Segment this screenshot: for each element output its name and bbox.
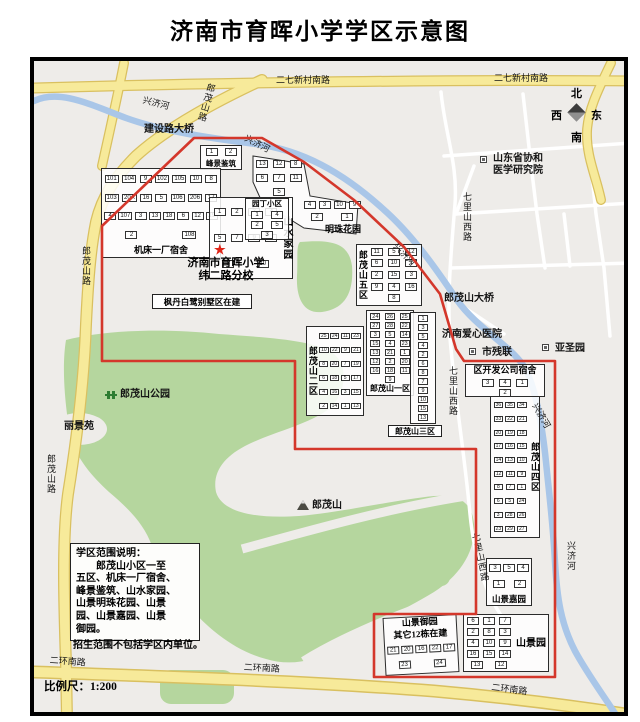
map-label: 医学研究院 — [493, 166, 543, 176]
building-box: 12 — [273, 160, 285, 168]
building-box: 5 — [214, 234, 226, 242]
building-box: 10 — [517, 457, 527, 463]
building-box: 3 — [489, 564, 501, 572]
building-box: 7 — [506, 484, 515, 490]
note-line: 五区、机床一厂宿舍、 — [76, 573, 194, 586]
building-group: 115126101215394168 — [367, 245, 421, 305]
building-box: 2 — [225, 148, 237, 156]
building-box: 13 — [351, 403, 361, 409]
building-box: 5 — [271, 221, 283, 229]
building-box: 6 — [371, 259, 383, 267]
building-box: 28 — [505, 512, 515, 518]
building-box: 13 — [505, 457, 515, 463]
building-box: 5 — [155, 194, 167, 202]
building-box: 1 — [214, 208, 226, 216]
building-box: 22 — [505, 416, 515, 422]
district-label: 明珠花园 — [323, 224, 363, 236]
map-label: 七里山西路 — [448, 366, 457, 416]
school-name: 济南市育晖小学 — [156, 257, 296, 270]
building-box: 5 — [385, 331, 395, 338]
school-star-icon: ★ — [214, 243, 226, 256]
building-box: 25 — [319, 333, 329, 339]
building-box: 16 — [370, 367, 380, 374]
building-box: 10 — [483, 639, 495, 647]
green-patch — [384, 560, 450, 586]
page-title: 济南市育晖小学学区示意图 — [0, 12, 640, 46]
building-box: 33 — [494, 416, 504, 422]
district-label: 山景园 — [514, 637, 548, 650]
building-box: 18 — [385, 367, 395, 374]
building-box: 2 — [251, 221, 263, 229]
building-box: 1 — [493, 580, 505, 588]
building-box: 8 — [388, 294, 400, 302]
district-wuqu: 郎茂山五区115126101215394168 — [356, 244, 422, 306]
building-box: 103 — [105, 194, 119, 202]
building-box: 6 — [256, 174, 268, 182]
building-box: 7 — [273, 174, 285, 182]
building-box: 20A — [122, 194, 137, 202]
building-box: 21 — [385, 349, 395, 356]
building-box: 16 — [467, 650, 479, 658]
building-box: 11 — [290, 174, 302, 182]
note-line: 郎茂山小区一至 — [76, 561, 194, 574]
district-label: 区开发公司宿舍 — [466, 365, 544, 377]
poi-icon — [469, 348, 476, 355]
building-box: 20 — [330, 361, 340, 367]
building-box: 2 — [311, 213, 323, 221]
scale-label: 比例尺：1:200 — [44, 678, 117, 694]
building-box: 13 — [149, 212, 161, 220]
building-box: 28 — [385, 322, 395, 329]
building-box: 1 — [517, 484, 526, 490]
building-box: 25 — [400, 313, 410, 320]
building-box: 105 — [172, 175, 186, 183]
compass-east: 东 — [591, 107, 602, 123]
map-label: 郎茂山路 — [46, 454, 55, 494]
building-box: 35 — [505, 402, 515, 408]
building-box: 23 — [494, 526, 504, 532]
building-box: 3 — [370, 331, 380, 338]
district-shanjingjia: 35412山景嘉园 — [486, 558, 532, 606]
building-box: 12 — [370, 358, 380, 365]
building-box: 16 — [330, 389, 340, 395]
building-box: 5 — [273, 188, 285, 196]
building-box: 16 — [415, 645, 427, 654]
building-box: 107 — [118, 212, 132, 220]
building-box: 3 — [418, 324, 428, 331]
building-box: 15 — [418, 405, 428, 412]
building-box: 9 — [385, 376, 395, 383]
building-box: 12 — [494, 471, 504, 477]
building-box: 9 — [517, 471, 526, 477]
building-box: 10 — [334, 201, 346, 209]
building-box: 6 — [494, 498, 503, 504]
map-label: 郎茂山大桥 — [444, 294, 494, 304]
building-box: 11 — [400, 367, 410, 374]
school-marker-block: ★ 济南市育晖小学 纬二路分校 — [156, 257, 296, 283]
boxed-label: 郎茂山三区 — [388, 425, 442, 437]
building-box: 15 — [517, 443, 527, 449]
building-box: 7 — [231, 234, 243, 242]
district-label: 郎茂山二区 — [307, 344, 317, 398]
district-label: 山景嘉园 — [487, 594, 531, 605]
district-erqu: 郎茂山二区25241123102292182071961851741631521… — [306, 326, 364, 416]
building-box: 5 — [418, 333, 428, 340]
map-frame: 12峰景鉴筑101104910210510810320A165106206174… — [30, 57, 628, 716]
building-box: 24 — [517, 498, 527, 504]
mountain-icon — [297, 500, 309, 510]
building-box: 22 — [330, 347, 340, 353]
note-line: 山景明珠花园、山景 — [76, 598, 194, 611]
building-box: 104 — [122, 175, 136, 183]
building-box: 27 — [370, 322, 380, 329]
map-label: 亚圣园 — [555, 344, 585, 354]
park-area-small — [297, 241, 352, 312]
building-box: 4 — [385, 340, 395, 347]
building-box: 1 — [418, 315, 428, 322]
compass-diamond-icon — [567, 103, 585, 121]
building-box: 8 — [418, 369, 428, 376]
building-box: 21 — [351, 347, 361, 353]
building-group: 35412 — [487, 559, 531, 594]
compass: 北 西 东 南 — [549, 85, 605, 143]
building-box: 16 — [405, 283, 417, 291]
building-group: 101104910210510810320A165106206174107313… — [102, 169, 220, 245]
building-box: 23 — [398, 661, 410, 670]
map-label: 市残联 — [482, 348, 512, 358]
building-box: 8 — [319, 361, 328, 367]
building-box: 9 — [349, 201, 361, 209]
building-box: 20 — [400, 358, 410, 365]
map-label: 丽景苑 — [64, 422, 94, 432]
building-box: 6 — [467, 617, 479, 625]
building-box: 15 — [370, 340, 380, 347]
building-box: 10 — [190, 175, 202, 183]
building-box: 13 — [471, 661, 483, 669]
building-box: 12 — [495, 661, 507, 669]
building-box: 5 — [503, 564, 515, 572]
poi-icon — [542, 344, 549, 351]
school-branch: 纬二路分校 — [156, 270, 296, 283]
park-icon — [105, 391, 117, 401]
building-box: 1 — [251, 211, 263, 219]
district-label: 郎茂山一区 — [367, 384, 413, 395]
building-group: 24262527282235141542313211122201618119 — [367, 311, 413, 384]
building-box: 206 — [188, 194, 202, 202]
building-box: 27 — [517, 526, 527, 532]
building-box: 19 — [505, 430, 515, 436]
building-box: 5 — [341, 375, 350, 381]
building-group: 3635343322212019181716151413101211987165… — [491, 397, 529, 537]
building-box: 2 — [418, 351, 428, 358]
building-box: 4 — [467, 639, 479, 647]
building-box: 2 — [385, 358, 395, 365]
district-shanjingyu: 山景御园其它12栋在建21201622172324 — [383, 614, 460, 676]
building-box: 1 — [400, 349, 410, 356]
building-box: 1 — [341, 213, 353, 221]
building-box: 6 — [418, 360, 428, 367]
building-box: 8 — [205, 175, 217, 183]
building-box: 9 — [341, 347, 350, 353]
building-box: 4 — [517, 564, 529, 572]
building-box: 36 — [494, 402, 504, 408]
building-group: 4310921 — [301, 198, 363, 224]
map-label: 二七新村南路 — [494, 74, 548, 83]
district-qukaifa: 区开发公司宿舍3412 — [465, 364, 545, 397]
building-box: 16 — [505, 443, 515, 449]
building-box: 102 — [155, 175, 169, 183]
building-box: 3 — [494, 512, 503, 518]
building-box: 5 — [505, 498, 514, 504]
district-mingzhu: 4310921明珠花园 — [301, 198, 363, 236]
building-box: 1 — [483, 617, 495, 625]
building-box: 106 — [171, 194, 185, 202]
note-line: 园、山景嘉园、山景 — [76, 611, 194, 624]
building-group: 12 — [201, 146, 241, 159]
building-box: 17 — [443, 644, 455, 653]
building-box: 4 — [499, 379, 511, 387]
building-box: 3 — [261, 231, 273, 239]
building-box: 2 — [467, 628, 479, 636]
district-label: 郎茂山四区 — [529, 440, 539, 494]
building-box: 4 — [271, 211, 283, 219]
building-group: 252411231022921820719618517416315214113 — [317, 327, 363, 415]
building-box: 2 — [125, 231, 137, 239]
building-box: 10 — [388, 259, 400, 267]
building-box: 21 — [387, 646, 399, 655]
building-box: 7 — [341, 361, 350, 367]
district-shanjingyuan: 61728341091615141312山景园 — [463, 614, 549, 672]
building-box: 15 — [388, 271, 400, 279]
building-box: 3 — [341, 389, 350, 395]
note-line: 学区范围说明： — [76, 548, 194, 561]
building-box: 4 — [319, 389, 328, 395]
map-label: 二环南路 — [244, 663, 280, 674]
building-box: 2 — [514, 580, 526, 588]
building-box: 2 — [371, 271, 383, 279]
building-box: 12 — [192, 212, 204, 220]
building-box: 24 — [433, 659, 445, 668]
building-box: 9 — [140, 175, 152, 183]
building-box: 17 — [494, 443, 504, 449]
building-box: 4 — [304, 201, 316, 209]
district-label: 机床一厂宿舍 — [102, 245, 220, 257]
district-siqu: 3635343322212019181716151413101211987165… — [490, 396, 540, 538]
building-box: 14 — [499, 650, 511, 658]
building-box: 18 — [163, 212, 175, 220]
building-box: 4 — [388, 283, 400, 291]
compass-south: 南 — [571, 129, 582, 145]
building-box: 101 — [105, 175, 119, 183]
building-box: 2 — [319, 403, 328, 409]
building-box: 23 — [351, 333, 361, 339]
building-box: 23 — [400, 340, 410, 347]
district-note-box: 学区范围说明： 郎茂山小区一至五区、机床一厂宿舍、峰景鉴筑、山水家园、山景明珠花… — [70, 543, 200, 641]
compass-west: 西 — [551, 107, 562, 123]
building-box: 10 — [319, 347, 329, 353]
map-label: 七里山西路 — [462, 192, 471, 242]
building-box: 2 — [231, 208, 243, 216]
building-box: 20 — [401, 646, 413, 655]
building-box: 3 — [405, 271, 417, 279]
building-box: 34 — [517, 402, 527, 408]
building-box: 3 — [499, 628, 511, 636]
building-box: 14 — [400, 331, 410, 338]
building-group: 21201622172324 — [385, 639, 459, 675]
building-box: 26 — [517, 512, 527, 518]
building-box: 24 — [370, 313, 380, 320]
building-box: 8 — [290, 160, 302, 168]
building-box: 13 — [256, 160, 268, 168]
building-group: 3412 — [466, 377, 544, 396]
building-box: 9 — [499, 639, 511, 647]
building-box: 11 — [371, 248, 383, 256]
building-box: 10 — [418, 396, 428, 403]
building-group: 1312867115 — [253, 156, 305, 200]
map-label: 建设路大桥 — [144, 125, 194, 135]
building-box: 15 — [483, 650, 495, 658]
map-label: 兴济河 — [566, 541, 575, 571]
building-group: 61728341091615141312 — [464, 615, 514, 671]
building-box: 8 — [483, 628, 495, 636]
map-label: 济南爱心医院 — [442, 330, 502, 340]
building-box: 108 — [182, 231, 196, 239]
district-label: 园丁小区 — [246, 199, 288, 209]
building-box: 1 — [516, 379, 528, 387]
building-box: 16 — [140, 194, 152, 202]
building-box: 9 — [418, 387, 428, 394]
district-mingzhu-upper: 1312867115 — [253, 156, 305, 200]
building-box: 26 — [385, 313, 395, 320]
building-box: 1 — [341, 403, 350, 409]
map-label: 山东省协和 — [493, 154, 543, 164]
building-box: 20 — [494, 430, 504, 436]
building-box: 24 — [330, 333, 340, 339]
boxed-label: 枫丹白鹭别墅区在建 — [152, 294, 252, 309]
building-box: 2 — [499, 389, 511, 396]
building-box: 14 — [494, 457, 504, 463]
map-label: 郎茂山公园 — [120, 390, 170, 400]
compass-north: 北 — [571, 85, 582, 101]
building-box: 4 — [104, 212, 116, 220]
building-box: 22 — [429, 644, 441, 653]
district-note-footer: 招生范围不包括学区内单位。 — [73, 636, 203, 651]
poi-icon — [480, 156, 487, 163]
district-label: 郎茂山五区 — [357, 248, 367, 302]
building-box: 3 — [135, 212, 147, 220]
building-box: 19 — [351, 361, 361, 367]
building-box: 6 — [319, 375, 328, 381]
building-box: 7 — [499, 617, 511, 625]
building-box: 17 — [351, 375, 361, 381]
building-box: 22 — [400, 322, 410, 329]
building-box: 9 — [371, 283, 383, 291]
building-box: 11 — [341, 333, 350, 339]
building-group: 14253 — [246, 209, 288, 239]
building-box: 4 — [418, 342, 428, 349]
building-box: 3 — [482, 379, 494, 387]
building-box: 13 — [370, 349, 380, 356]
building-group: 13542687910151312 — [411, 313, 435, 423]
building-box: 6 — [177, 212, 189, 220]
district-jichuang: 101104910210510810320A165106206174107313… — [101, 168, 221, 258]
district-yuanding: 园丁小区14253 — [245, 198, 289, 240]
building-box: 3 — [319, 201, 331, 209]
building-box: 18 — [517, 430, 527, 436]
building-box: 15 — [351, 389, 361, 395]
building-box: 14 — [330, 403, 340, 409]
note-line: 峰景鉴筑、山水家园、 — [76, 586, 194, 599]
building-box: 8 — [494, 484, 503, 490]
district-sanqu: 13542687910151312 — [410, 312, 436, 424]
district-fengjing: 12峰景鉴筑 — [200, 145, 242, 170]
map-label: 郎茂山 — [312, 501, 342, 511]
district-yiqu: 24262527282235141542313211122201618119郎茂… — [366, 310, 414, 396]
map-label: 二七新村南路 — [276, 76, 330, 85]
building-box: 13 — [418, 414, 428, 421]
building-box: 1 — [206, 148, 218, 156]
building-box: 11 — [506, 471, 515, 477]
building-box: 18 — [330, 375, 340, 381]
map-label: 郎茂山路 — [81, 246, 90, 286]
note-line: 御园。 — [76, 624, 194, 637]
building-box: 7 — [418, 378, 428, 385]
building-box: 29 — [505, 526, 515, 532]
building-box: 21 — [517, 416, 527, 422]
